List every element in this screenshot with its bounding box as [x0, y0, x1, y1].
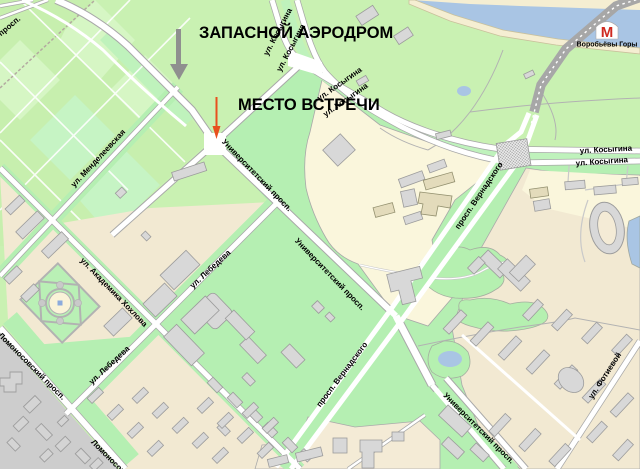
- svg-text:МЕСТО ВСТРЕЧИ: МЕСТО ВСТРЕЧИ: [238, 96, 380, 114]
- svg-text:М: М: [601, 24, 614, 41]
- svg-text:Воробьёвы Горы: Воробьёвы Горы: [577, 41, 638, 49]
